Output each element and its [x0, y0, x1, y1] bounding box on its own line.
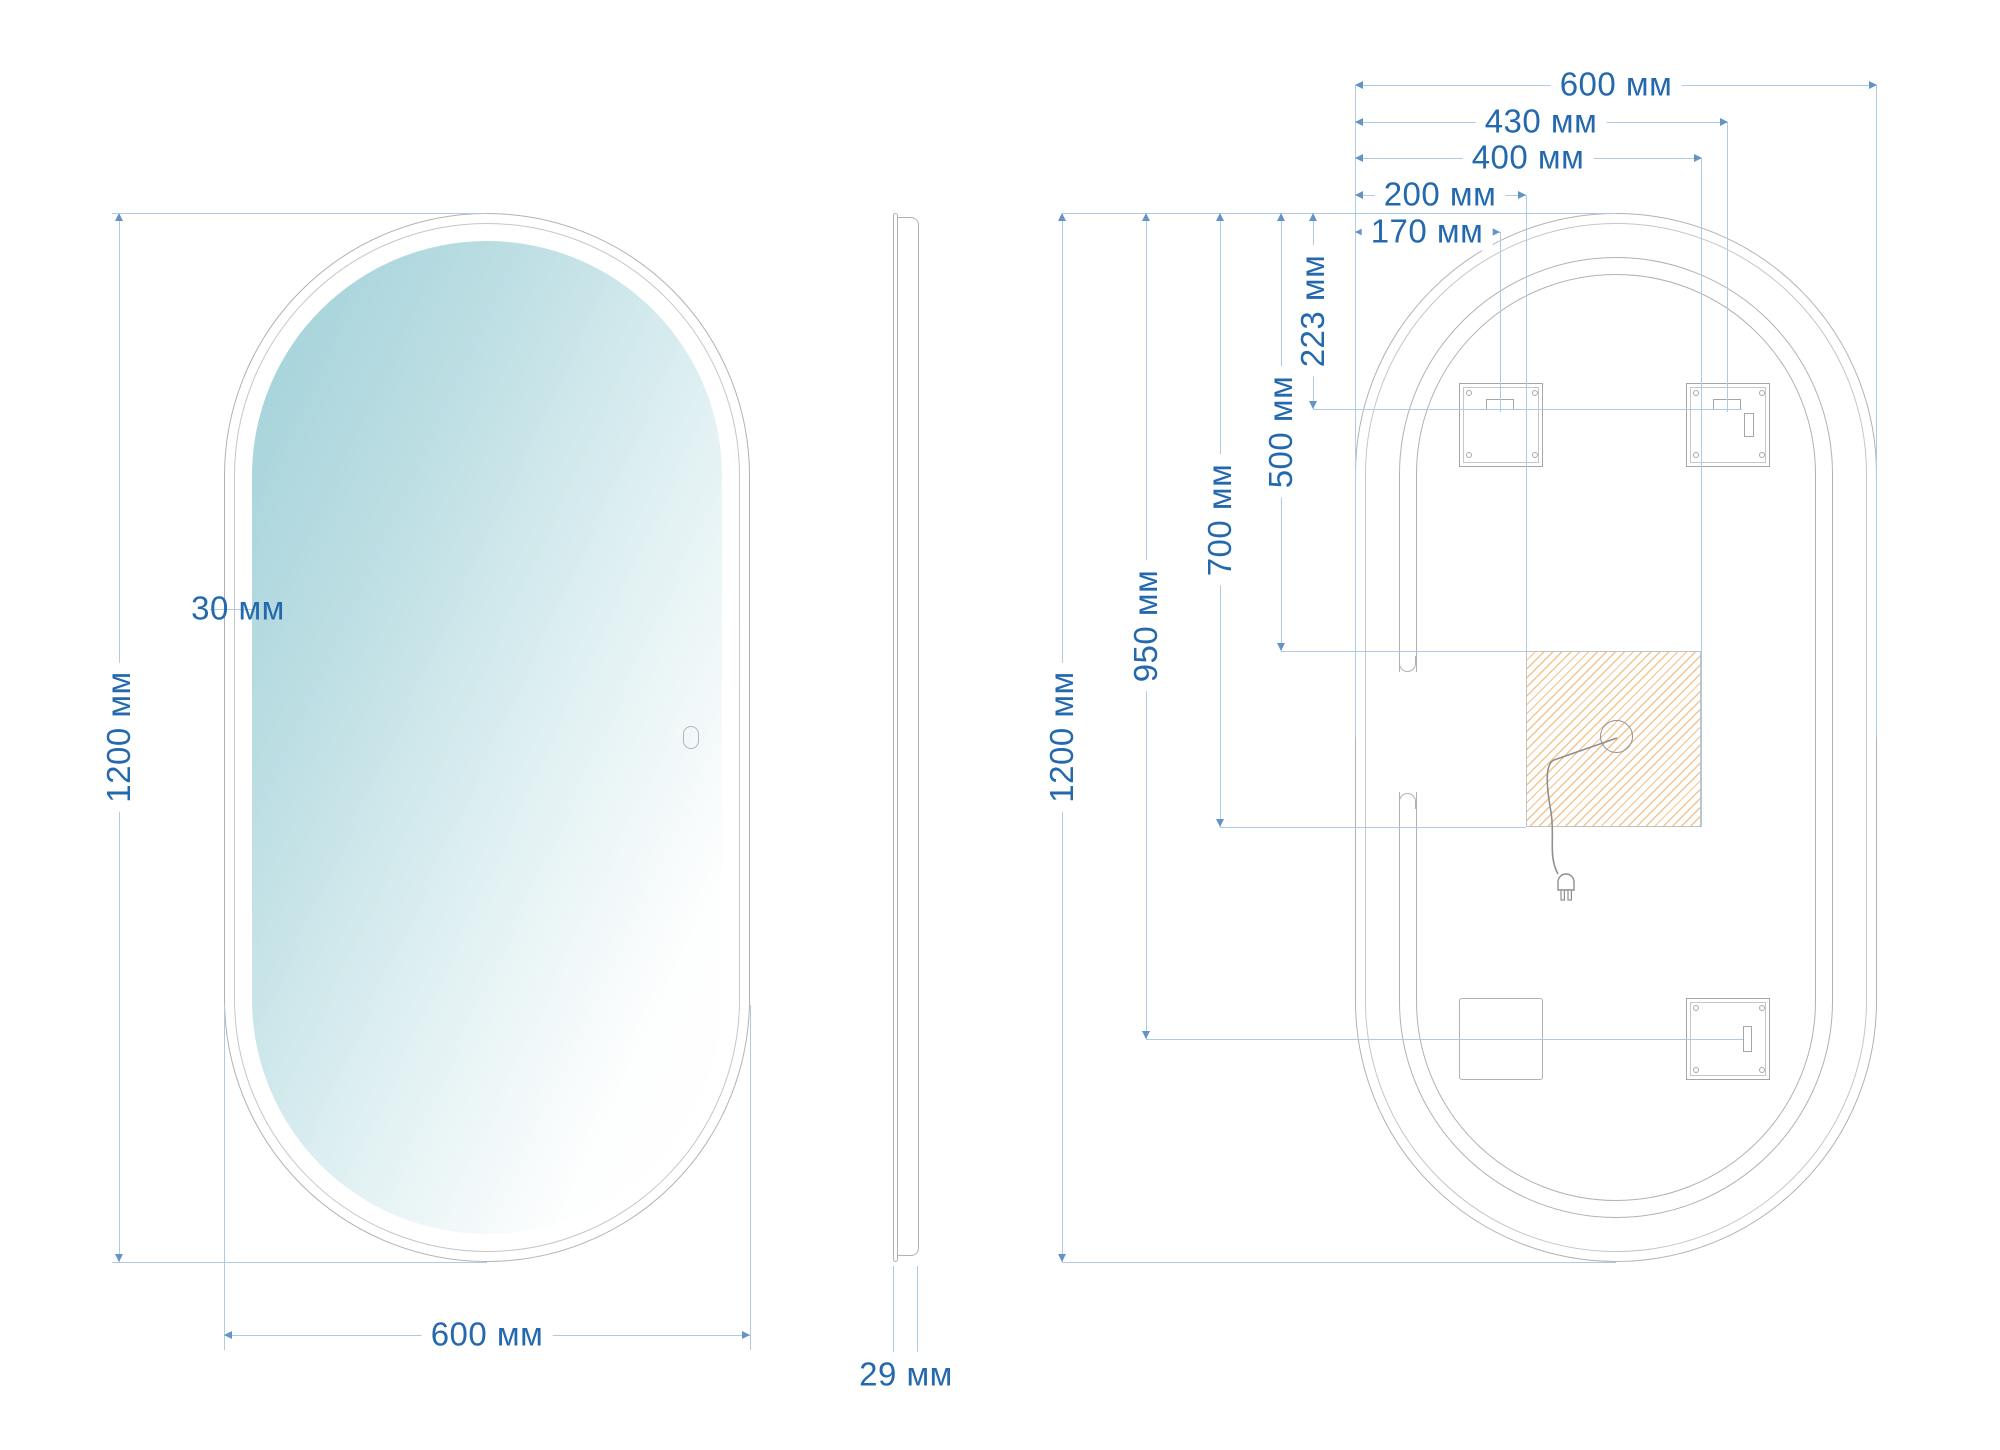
back-ext-right-170	[1500, 232, 1501, 412]
back-ext-right-400	[1701, 158, 1702, 827]
back-ext-right-430	[1727, 122, 1728, 412]
back-ext-bottom-500	[1281, 651, 1526, 652]
dim-arrow	[1142, 213, 1150, 221]
back-dim-400-label: 400 мм	[1463, 139, 1594, 177]
back-ext-bottom-223	[1313, 409, 1742, 410]
back-dim-1200-label: 1200 мм	[1043, 662, 1081, 811]
dim-arrow	[1355, 118, 1363, 126]
back-ext-bottom-1200	[1062, 1262, 1616, 1263]
dim-arrow	[1869, 81, 1877, 89]
power-cable-and-plug-icon	[0, 0, 2000, 1450]
back-ext-right-600	[1876, 85, 1877, 737]
dim-arrow	[1355, 81, 1363, 89]
back-ext-bottom-700	[1220, 827, 1526, 828]
mirror-technical-drawing: 1200 мм 600 мм 30 мм 29 мм	[0, 0, 2000, 1450]
dim-arrow	[1492, 228, 1500, 236]
back-dim-200-label: 200 мм	[1375, 176, 1506, 214]
back-ext-right-200	[1526, 195, 1527, 651]
back-dim-700-label: 700 мм	[1201, 455, 1239, 586]
dim-arrow	[1216, 213, 1224, 221]
dim-arrow	[1142, 1031, 1150, 1039]
back-dim-500-label: 500 мм	[1262, 367, 1300, 498]
dim-arrow	[1720, 118, 1728, 126]
dim-arrow	[1518, 191, 1526, 199]
back-dim-430-label: 430 мм	[1476, 103, 1607, 141]
dim-arrow	[1277, 643, 1285, 651]
back-dim-170-label: 170 мм	[1362, 213, 1493, 251]
dim-arrow	[1277, 213, 1285, 221]
dim-arrow	[1058, 213, 1066, 221]
back-dim-600-label: 600 мм	[1551, 66, 1682, 104]
back-dim-223-label: 223 мм	[1294, 246, 1332, 377]
dim-arrow	[1216, 819, 1224, 827]
back-ext-bottom-950	[1146, 1039, 1743, 1040]
dim-arrow	[1309, 401, 1317, 409]
back-ext-left-shared	[1355, 85, 1356, 737]
back-dim-950-label: 950 мм	[1127, 561, 1165, 692]
dim-arrow	[1058, 1254, 1066, 1262]
dim-arrow	[1355, 154, 1363, 162]
dim-arrow	[1355, 191, 1363, 199]
dim-arrow	[1309, 213, 1317, 221]
dim-arrow	[1694, 154, 1702, 162]
